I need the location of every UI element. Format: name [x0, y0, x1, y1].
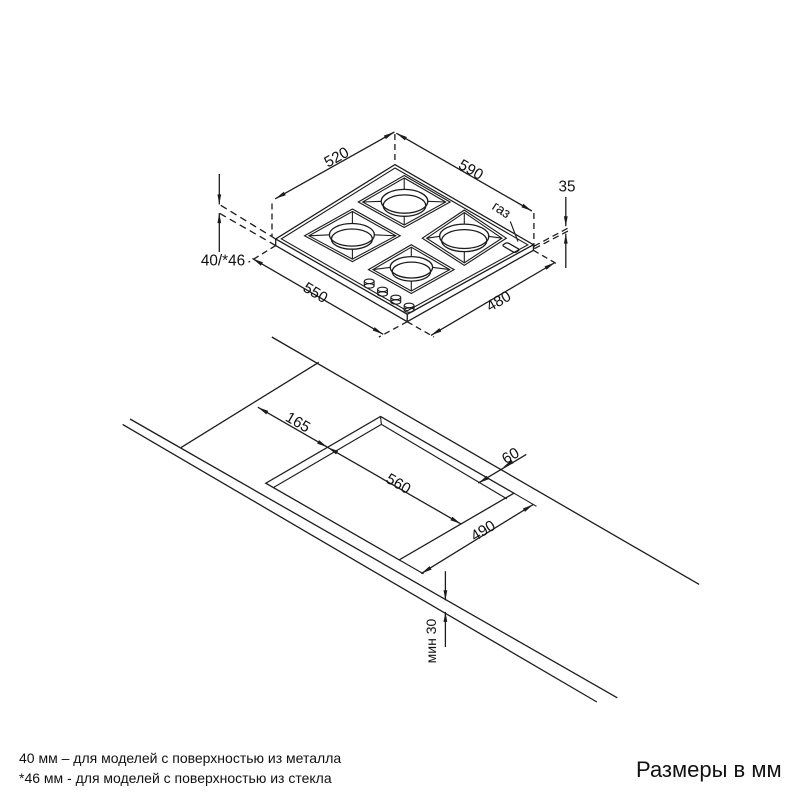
svg-text:590: 590 — [455, 156, 486, 183]
svg-text:490: 490 — [468, 517, 499, 545]
svg-text:35: 35 — [558, 179, 575, 196]
svg-text:60: 60 — [499, 444, 522, 467]
svg-text:520: 520 — [321, 144, 352, 171]
svg-text:*46 мм - для моделей с поверхн: *46 мм - для моделей с поверхностью из с… — [19, 770, 332, 786]
svg-text:мин 30: мин 30 — [423, 618, 439, 663]
svg-text:Размеры в мм: Размеры в мм — [636, 757, 782, 782]
svg-text:40/*46: 40/*46 — [201, 253, 245, 270]
svg-text:480: 480 — [483, 288, 514, 315]
svg-text:газ: газ — [489, 198, 514, 222]
svg-text:550: 550 — [300, 279, 331, 307]
svg-text:165: 165 — [282, 409, 313, 436]
svg-text:40 мм – для моделей с поверхно: 40 мм – для моделей с поверхностью из ме… — [19, 750, 341, 766]
